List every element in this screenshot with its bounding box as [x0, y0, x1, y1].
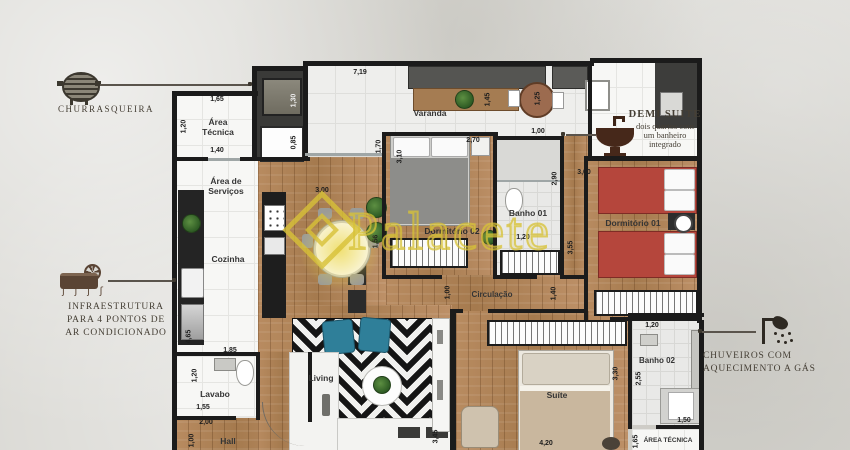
lavabo-sink	[214, 358, 236, 371]
dimension-label: 3,00	[302, 187, 342, 194]
banho02-shower-tray	[668, 392, 694, 420]
shower-icon	[756, 312, 796, 352]
dimension-label: 1,45	[485, 85, 492, 115]
dimension-label: 1,25	[535, 84, 542, 114]
dimension-label: 1,40	[551, 279, 558, 309]
annotation-chuveiros-line1: CHUVEIROS COM	[703, 351, 843, 363]
dimension-label: 3,10	[397, 142, 404, 172]
annotation-chuveiros-line2: AQUECIMENTO A GÁS	[703, 364, 843, 376]
annotation-ar-condicionado-line3: AR CONDICIONADO	[44, 328, 188, 340]
room-label-lavabo: Lavabo	[185, 389, 245, 399]
kitchen-sink	[264, 237, 285, 255]
dimension-label: 0,85	[291, 128, 298, 158]
dining-chair	[350, 274, 364, 285]
dining-chair	[302, 234, 313, 248]
armchair-blue-2	[358, 317, 392, 354]
dining-chair	[350, 208, 364, 219]
annotation-demi-suite-line3: integrado	[613, 139, 717, 150]
room-label-living: Living	[291, 373, 351, 383]
tv-console-item	[398, 427, 420, 438]
dimension-label: 1,50	[664, 417, 704, 424]
dimension-label: 3,55	[568, 233, 575, 263]
grill-icon	[60, 68, 98, 104]
dimension-label: 1,20	[181, 112, 188, 142]
dimension-label: 1,00	[445, 278, 452, 308]
ac-airflow-glyphs: ʃ ʃ ʃ ʃ	[62, 286, 106, 297]
room-label-banho-01: Banho 01	[488, 208, 568, 218]
varanda-chair	[508, 90, 520, 107]
annotation-demi-suite-title: DEMI SUITE	[613, 108, 717, 121]
dimension-label: 3,30	[613, 359, 620, 389]
sideboard-item	[437, 330, 443, 344]
room-label-hall: Hall	[198, 436, 258, 446]
suite-pillows	[522, 353, 610, 385]
plant-icon	[182, 214, 201, 233]
dimension-label: 7,19	[340, 69, 380, 76]
dimension-label: 1,85	[210, 347, 250, 354]
armchair-blue	[321, 318, 355, 355]
pillow	[664, 190, 695, 211]
dimension-label: 1,20	[632, 322, 672, 329]
pillow	[664, 233, 695, 254]
room-label-dormitorio-01: Dormitório 01	[583, 218, 683, 228]
dimension-label: 1,65	[633, 427, 640, 450]
dimension-label: 1,20	[503, 234, 543, 241]
dimension-label: 1,20	[192, 361, 199, 391]
vanity-banho01	[500, 250, 560, 275]
room-label-cozinha: Cozinha	[188, 254, 268, 264]
room-label-banho-02: Banho 02	[617, 356, 697, 366]
annotation-ar-condicionado-line1: INFRAESTRUTURA	[44, 302, 188, 314]
dimension-label: 2,90	[552, 164, 559, 194]
pillow	[664, 254, 695, 275]
washing-machine	[181, 268, 204, 298]
plant-icon	[373, 376, 391, 394]
annotation-churrasqueira: CHURRASQUEIRA	[28, 104, 184, 115]
varanda-sofa-2	[552, 66, 588, 89]
banho02-sink	[640, 334, 658, 346]
dining-table	[314, 221, 370, 277]
dimension-label: 1,70	[376, 132, 383, 162]
dimension-label: 1,56	[373, 227, 380, 257]
dimension-label: 3,45	[433, 422, 440, 450]
dining-chair	[318, 208, 332, 219]
dimension-label: 1,00	[189, 426, 196, 450]
room-label-area-tecnica-inf: ÁREA TÉCNICA	[628, 437, 708, 445]
wardrobe-suite	[487, 320, 627, 346]
dining-chair	[318, 274, 332, 285]
plant-icon	[455, 90, 474, 109]
sofa-tray	[322, 394, 330, 416]
dimension-label: 1,65	[197, 96, 237, 103]
dimension-label: 2,55	[636, 364, 643, 394]
suite-stool	[602, 437, 620, 450]
pillow	[664, 169, 695, 190]
dimension-label: 2,70	[453, 137, 493, 144]
sideboard-item-2	[437, 380, 443, 400]
dimension-label: 4,20	[526, 440, 566, 447]
dimension-label: 1,40	[197, 147, 237, 154]
suite-armchair	[461, 406, 499, 448]
varanda-chair-2	[552, 92, 564, 109]
room-label-suite: Suíte	[517, 390, 597, 400]
dimension-label: 1,00	[518, 128, 558, 135]
stove-icon	[264, 205, 285, 231]
wardrobe-dorm02	[390, 238, 468, 268]
room-label-varanda: Varanda	[390, 108, 470, 118]
room-label-area-tecnica-sup: ÁreaTécnica	[178, 117, 258, 137]
annotation-ar-condicionado-line2: PARA 4 PONTOS DE	[44, 315, 188, 327]
room-label-area-servicos: Área deServiços	[186, 176, 266, 196]
room-label-circulacao: Circulação	[452, 290, 532, 300]
toilet-icon	[236, 360, 254, 386]
dimension-label: 1,30	[291, 86, 298, 116]
dimension-label: 3,00	[564, 169, 604, 176]
bar-stool-2	[348, 290, 366, 313]
dimension-label: 1,55	[183, 404, 223, 411]
room-label-dormitorio-02: Dormitório 02	[402, 226, 502, 236]
floor-plan-image: ÁreaTécnica Varanda Área deServiços Cozi…	[0, 0, 850, 450]
